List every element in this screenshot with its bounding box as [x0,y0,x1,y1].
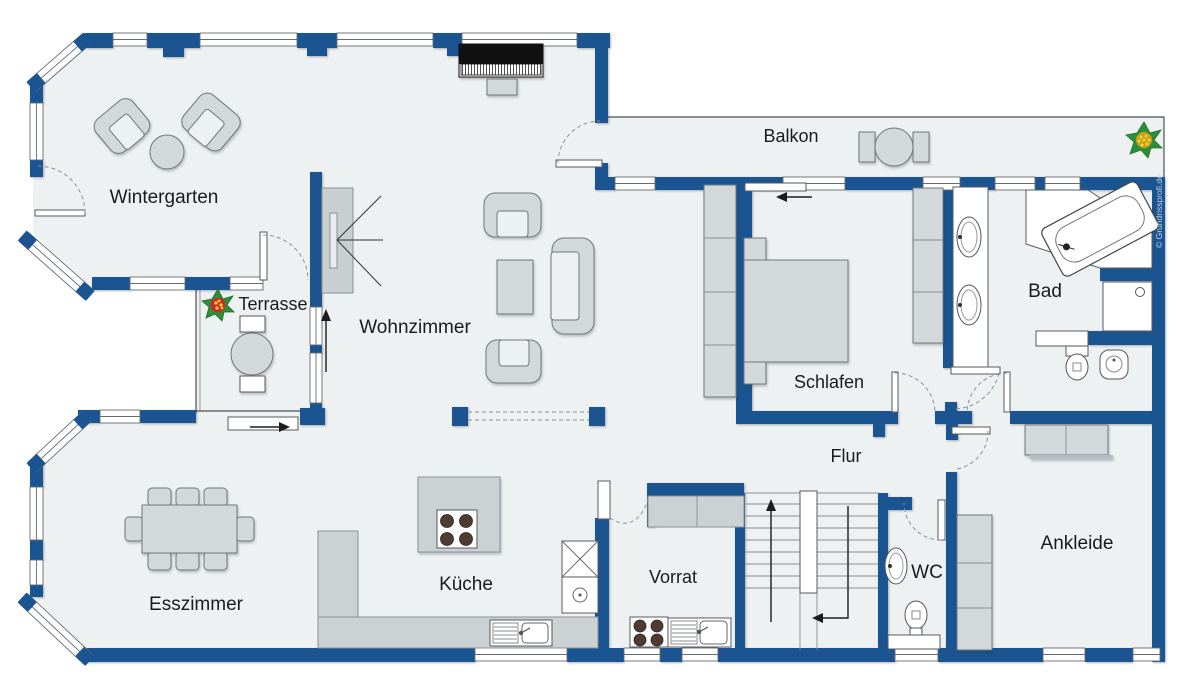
room-label-flur: Flur [831,446,862,466]
bed [744,260,848,362]
vorrat-cooktop [630,617,668,647]
bad-shelf [1036,331,1088,346]
room-label-esszimmer: Esszimmer [149,594,244,615]
wc-shelf [888,635,940,649]
kitchen-counter-bottom [318,617,598,648]
ankleide-chest [1025,425,1113,459]
wohnzimmer-armchair-bottom [486,340,541,383]
room-label-kueche: Küche [439,574,493,595]
vorrat-counter [648,496,744,527]
door-leaf-schlafen [892,372,898,412]
room-label-bad: Bad [1028,281,1062,302]
bad-bidet [1100,350,1128,379]
door-leaf-ankleide [952,427,990,434]
door-leaf-schlafen-bad [951,367,1000,374]
schlafen-wardrobe [913,188,943,343]
kitchen-tall-units [562,541,598,613]
bad-toilet [1066,346,1088,380]
room-label-ankleide: Ankleide [1041,533,1114,554]
nightstand-bottom [744,362,766,384]
door-leaf-wintergarten [35,210,85,216]
room-label-balkon: Balkon [763,126,818,146]
room-label-terrasse: Terrasse [238,294,307,314]
door-leaf-balkon [556,160,602,167]
kitchen-sink [490,620,552,646]
vorrat-sink [668,618,731,647]
balcony-table-set [859,128,929,166]
room-label-wc: WC [911,562,943,583]
wintergarten-table [150,135,184,169]
room-label-wintergarten: Wintergarten [110,187,219,208]
vanity-sinks [953,187,988,367]
stair-stringer [800,491,817,593]
wohnzimmer-coffee-table [497,260,533,314]
wohnzimmer-sofa [551,238,594,334]
piano-bench [487,79,517,95]
door-leaf-wc [938,500,945,540]
room-label-vorrat: Vorrat [649,567,697,587]
shower [1103,282,1152,331]
room-label-schlafen: Schlafen [794,372,864,392]
wohnzimmer-wardrobe [704,185,736,397]
nightstand-top [744,238,766,260]
door-leaf-terrasse [260,232,267,280]
floor-plan: Wintergarten Terrasse Wohnzimmer Esszimm… [0,0,1200,688]
kitchen-island [418,477,500,552]
watermark: © Grundrissprofi.de [1154,174,1164,248]
door-leaf-bad [1004,372,1010,412]
sliding-door-schlafen [745,183,806,191]
door-leaf-vorrat [598,481,610,519]
room-label-wohnzimmer: Wohnzimmer [359,317,471,338]
wohnzimmer-armchair-top [484,193,541,237]
ankleide-wardrobe [957,515,992,650]
